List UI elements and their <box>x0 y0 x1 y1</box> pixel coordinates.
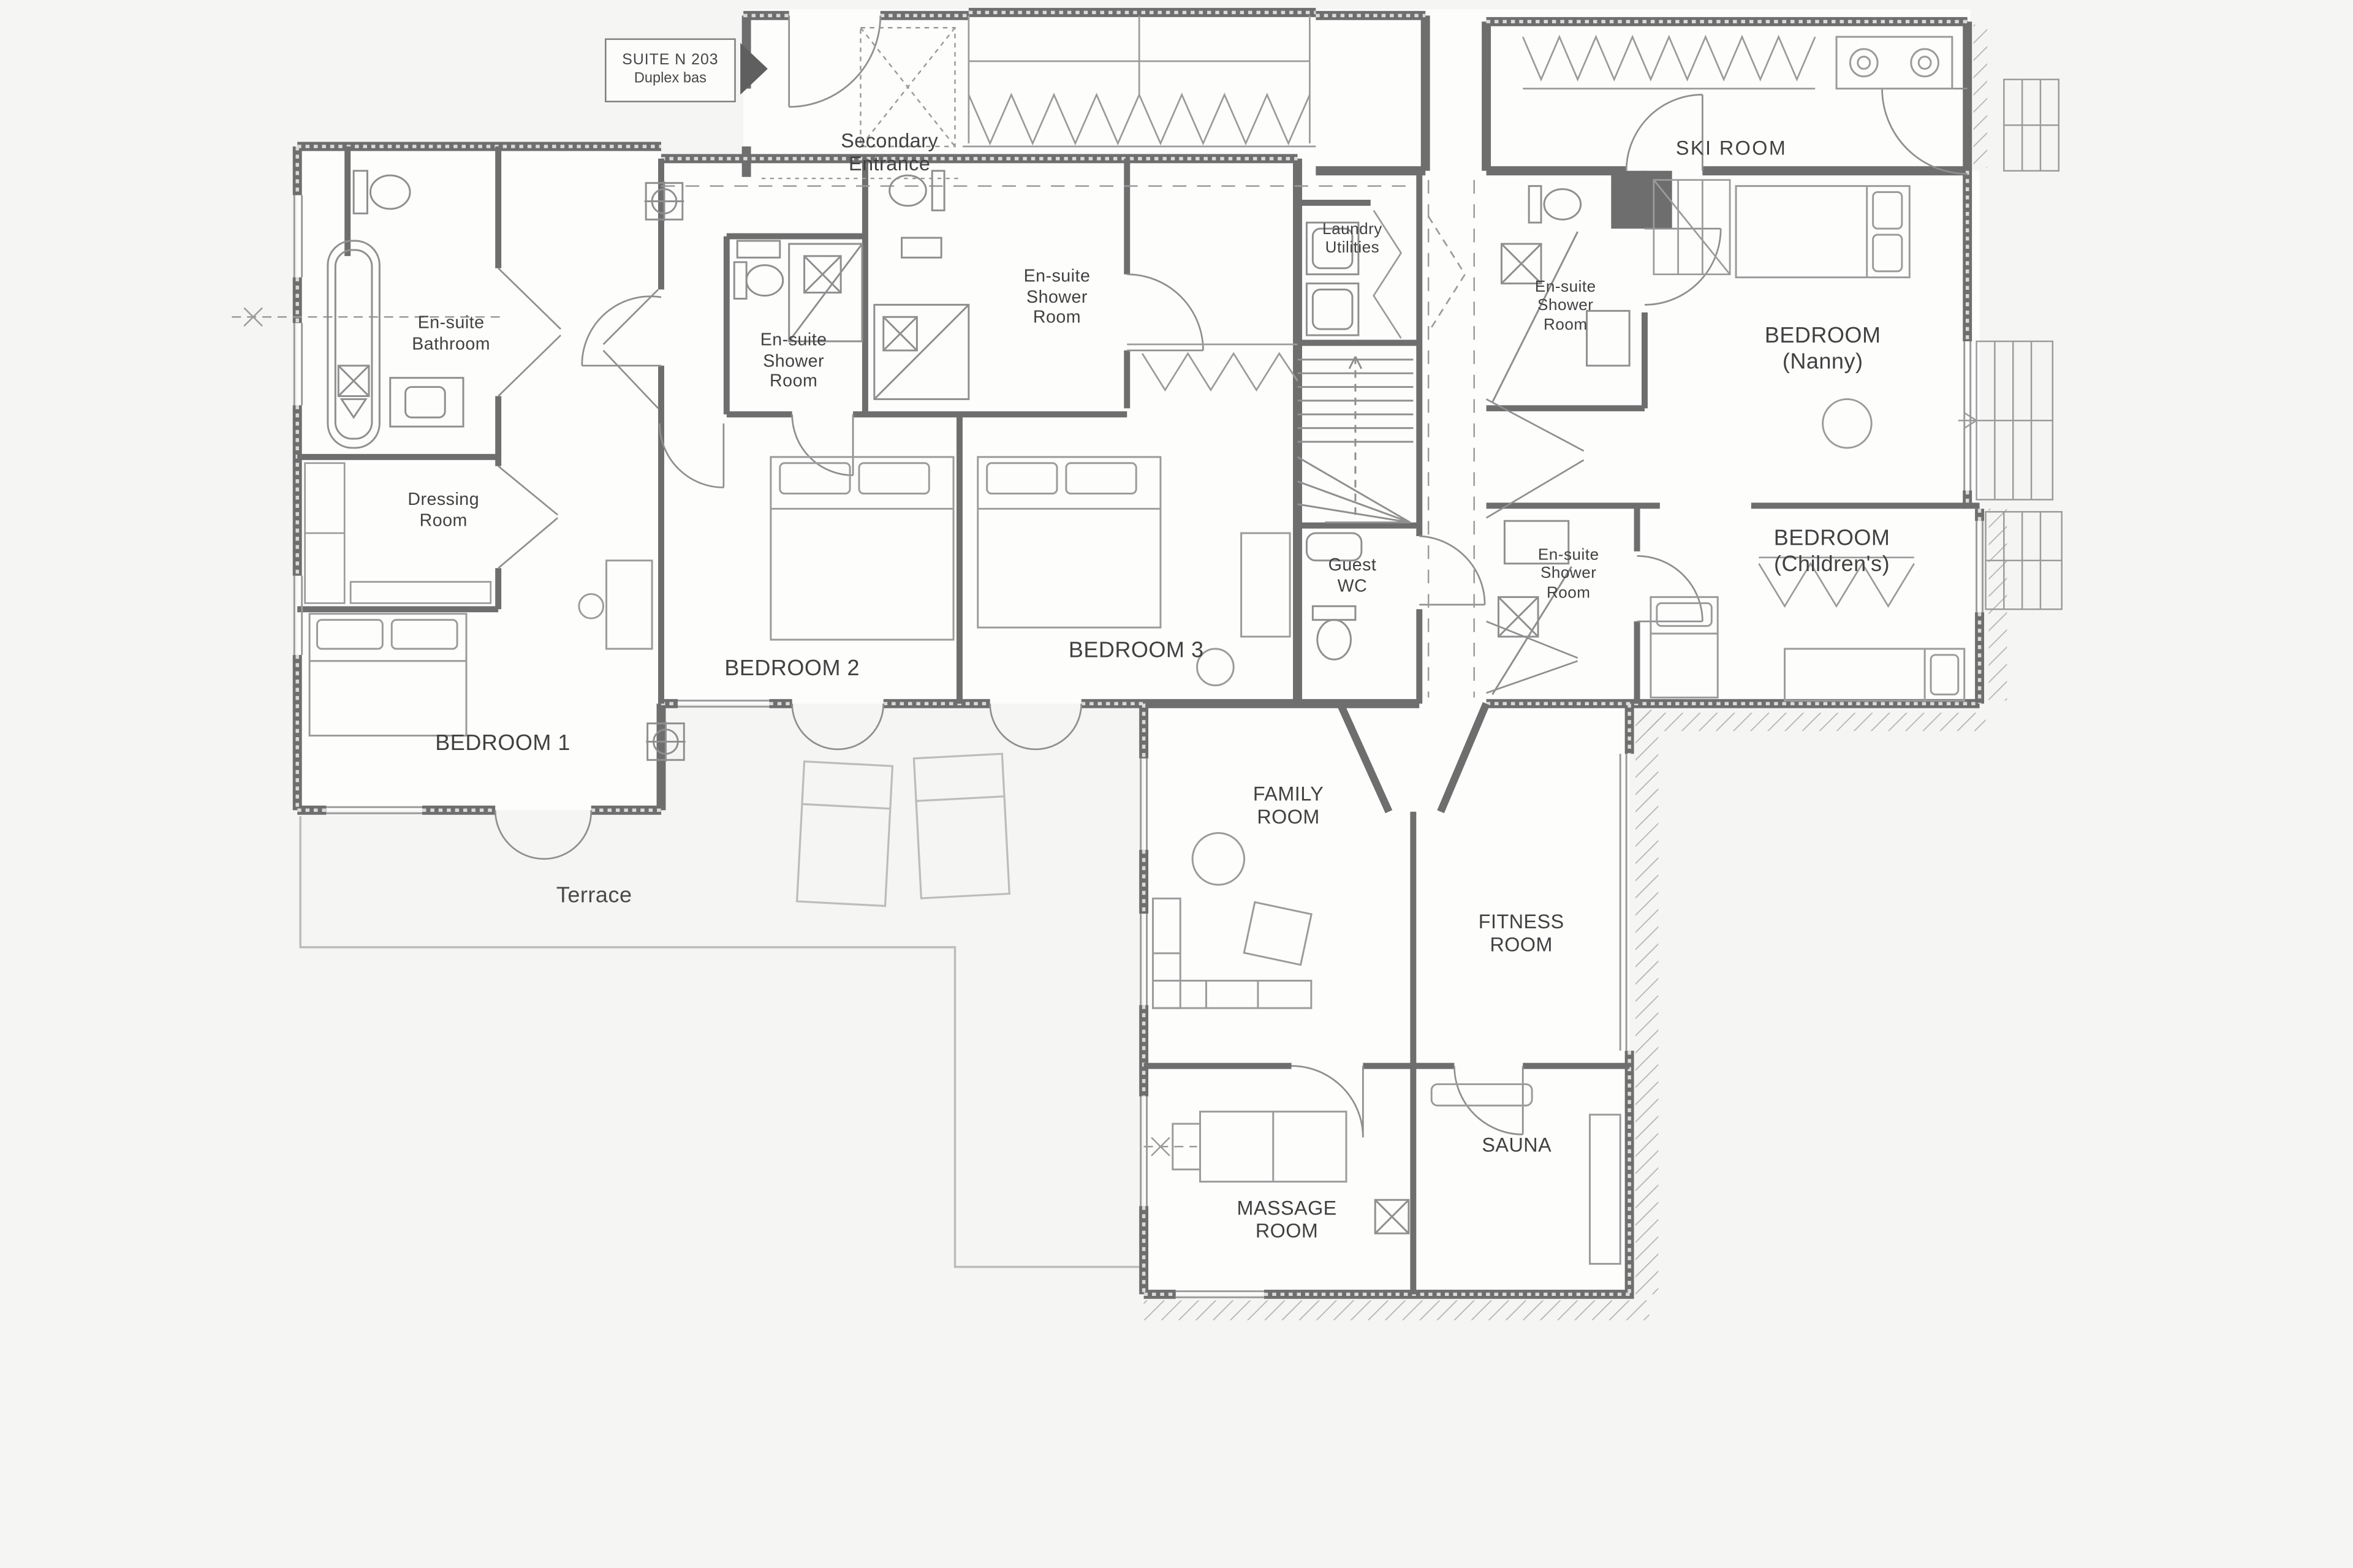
room-label-bedroom-3: BEDROOM 3 <box>1069 638 1204 665</box>
room-label-fitness-room: FITNESS ROOM <box>1479 910 1564 956</box>
room-label-sauna: SAUNA <box>1482 1133 1552 1156</box>
room-label-dressing-room: Dressing Room <box>407 491 479 532</box>
room-label-guest-wc: Guest WC <box>1328 556 1377 597</box>
room-label-bedroom-nanny: BEDROOM (Nanny) <box>1765 324 1881 376</box>
suite-tag: SUITE N 203 Duplex bas <box>605 38 736 102</box>
room-label-bedroom-1: BEDROOM 1 <box>435 732 570 758</box>
room-label-ensuite-shower-bedroom2: En-suite Shower Room <box>760 331 827 393</box>
room-label-ensuite-shower-children: En-suite Shower Room <box>1538 546 1599 602</box>
room-label-ensuite-shower-bedroom3: En-suite Shower Room <box>1024 267 1091 329</box>
room-label-ensuite-bathroom: En-suite Bathroom <box>412 314 490 355</box>
suite-tag-number: SUITE N 203 <box>622 51 718 70</box>
room-label-laundry-utilities: Laundry Utilities <box>1322 220 1382 257</box>
room-label-bedroom-2: BEDROOM 2 <box>724 657 860 683</box>
suite-tag-subtitle: Duplex bas <box>634 70 707 89</box>
floorplan-drawing <box>1 0 2353 1568</box>
terrace-outline <box>300 816 1140 1267</box>
room-label-terrace: Terrace <box>556 884 632 910</box>
room-label-bedroom-children: BEDROOM (Children's) <box>1774 526 1890 578</box>
sun-lounger-icon <box>797 754 1010 906</box>
room-label-ensuite-shower-nanny: En-suite Shower Room <box>1535 278 1596 334</box>
room-label-massage-room: MASSAGE ROOM <box>1237 1196 1337 1243</box>
floorplan-stage: SUITE N 203 Duplex bas Secondary Entranc… <box>1 0 2353 1568</box>
room-label-secondary-entrance: Secondary Entrance <box>841 129 938 175</box>
room-label-ski-room: SKI ROOM <box>1676 136 1787 159</box>
room-label-family-room: FAMILY ROOM <box>1253 782 1324 828</box>
floorplan-viewport: SUITE N 203 Duplex bas Secondary Entranc… <box>0 0 2353 1568</box>
